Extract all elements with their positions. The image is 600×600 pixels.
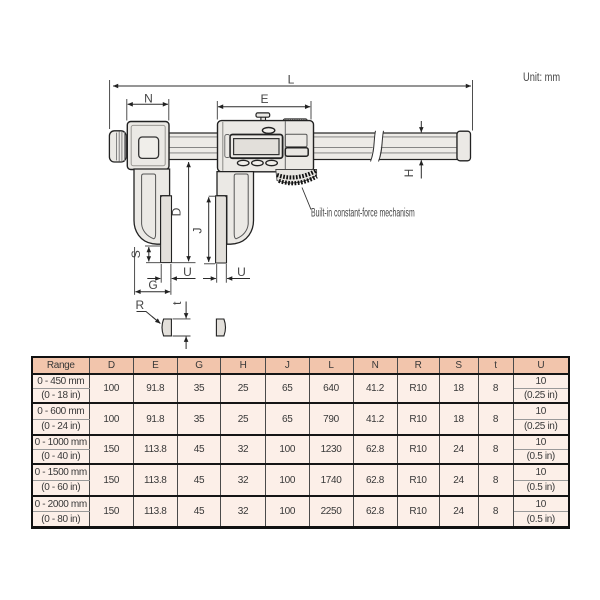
svg-text:N: N bbox=[144, 91, 153, 105]
svg-text:t: t bbox=[170, 301, 184, 305]
svg-text:U: U bbox=[183, 265, 192, 279]
svg-text:U: U bbox=[237, 265, 246, 279]
svg-text:E: E bbox=[260, 92, 268, 106]
svg-text:H: H bbox=[402, 169, 416, 178]
svg-text:J: J bbox=[191, 228, 205, 234]
svg-text:Unit: mm: Unit: mm bbox=[523, 71, 560, 84]
svg-text:D: D bbox=[170, 207, 184, 216]
svg-text:S: S bbox=[129, 250, 143, 258]
svg-text:R: R bbox=[136, 298, 145, 312]
svg-text:L: L bbox=[288, 73, 295, 87]
svg-text:Built-in constant-force mechan: Built-in constant-force mechanism bbox=[311, 207, 415, 220]
svg-text:G: G bbox=[148, 278, 157, 292]
